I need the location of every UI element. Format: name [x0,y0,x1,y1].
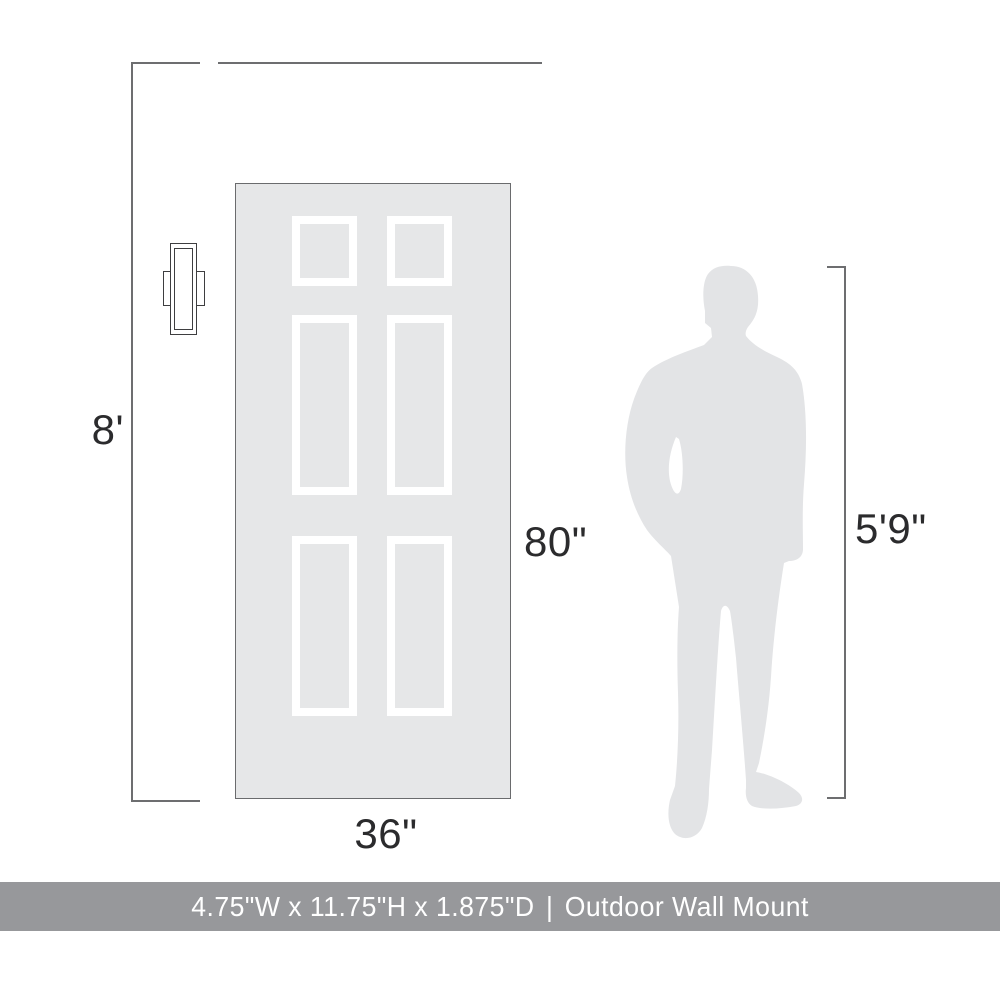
footer-text: 4.75"W x 11.75"H x 1.875"D|Outdoor Wall … [191,882,809,931]
person-height-dimension-tick-bottom [827,797,846,799]
footer-category: Outdoor Wall Mount [565,891,809,922]
person-height-label: 5'9" [855,508,927,550]
product-dimension-diagram: 8' 80" 36" 5'9" 4.75"W x 11.75"H x 1.875… [0,0,1000,1000]
person-silhouette [0,0,1000,1000]
footer-separator: | [546,891,553,922]
person-height-dimension-tick-top [827,266,846,268]
person-height-dimension-line [844,266,846,799]
footer-product-dimensions: 4.75"W x 11.75"H x 1.875"D [191,891,534,922]
footer-bar: 4.75"W x 11.75"H x 1.875"D|Outdoor Wall … [0,882,1000,931]
